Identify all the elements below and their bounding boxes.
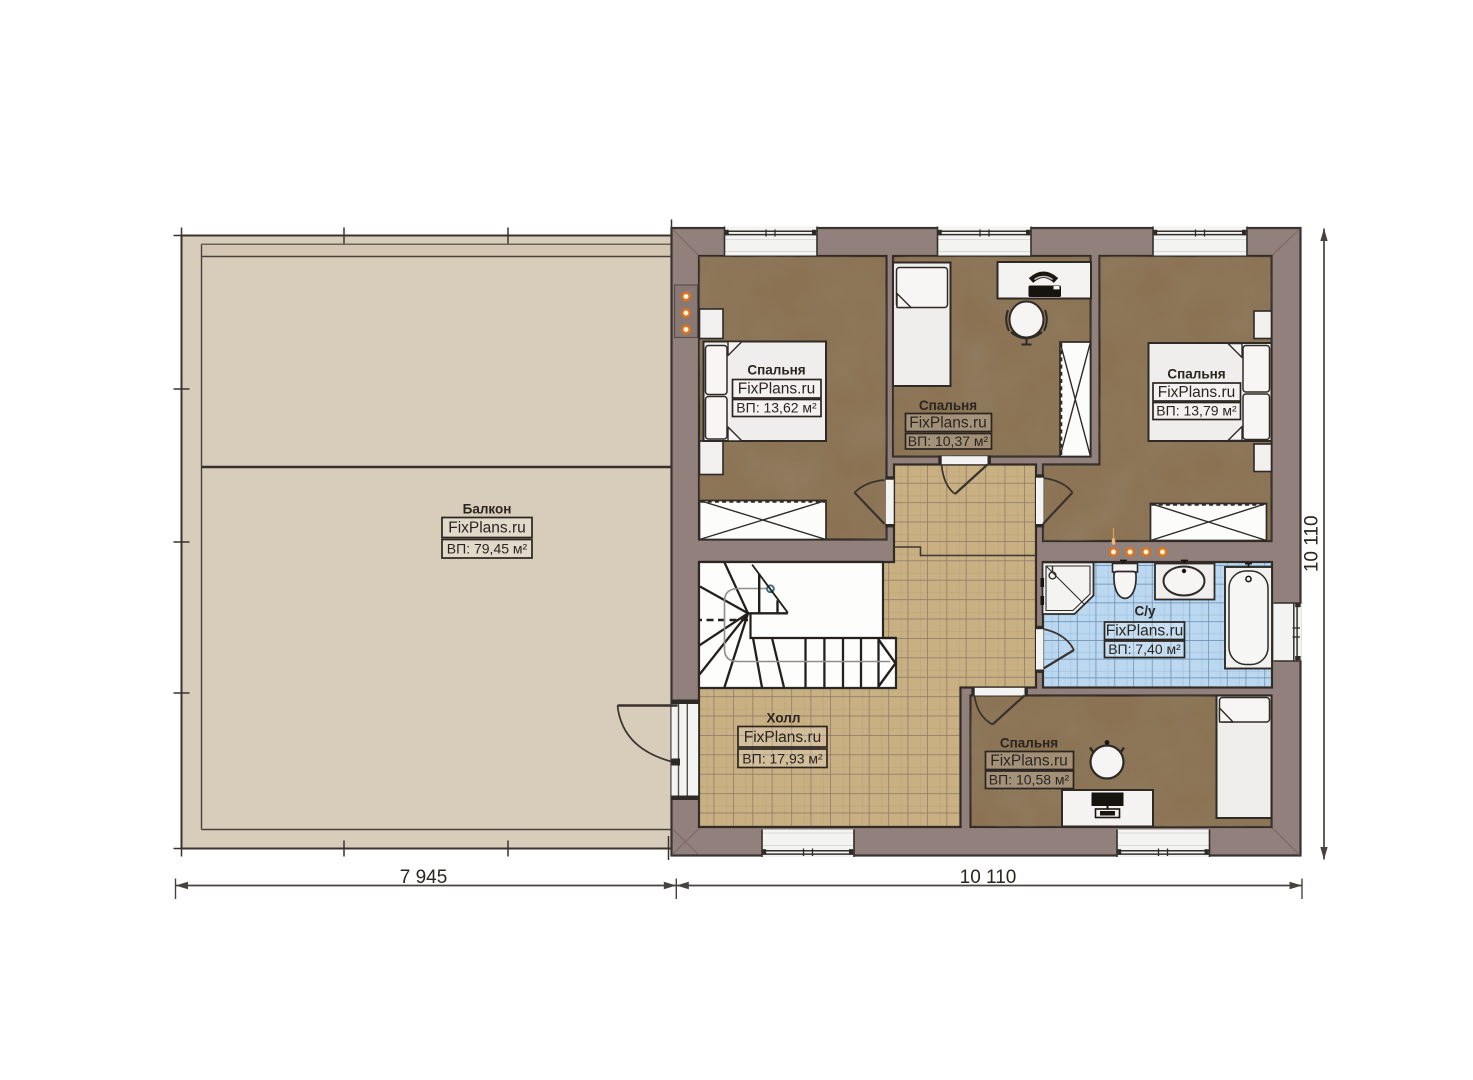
svg-text:FixPlans.ru: FixPlans.ru [744, 729, 822, 746]
svg-text:Холл: Холл [767, 711, 801, 726]
svg-text:FixPlans.ru: FixPlans.ru [909, 415, 987, 432]
svg-text:10 110: 10 110 [1302, 515, 1323, 572]
svg-text:ВП: 13,62 м²: ВП: 13,62 м² [736, 400, 817, 416]
svg-text:ВП: 7,40 м²: ВП: 7,40 м² [1108, 641, 1181, 657]
svg-text:ВП: 13,79 м²: ВП: 13,79 м² [1156, 403, 1237, 419]
svg-text:7 945: 7 945 [400, 867, 448, 888]
svg-text:Спальня: Спальня [747, 363, 805, 378]
svg-text:FixPlans.ru: FixPlans.ru [738, 381, 816, 398]
svg-text:FixPlans.ru: FixPlans.ru [990, 753, 1068, 770]
svg-text:Спальня: Спальня [919, 398, 977, 413]
svg-text:FixPlans.ru: FixPlans.ru [1158, 384, 1236, 401]
svg-text:FixPlans.ru: FixPlans.ru [1106, 623, 1184, 640]
svg-text:С/у: С/у [1134, 604, 1156, 619]
svg-text:ВП: 79,45 м²: ВП: 79,45 м² [447, 541, 528, 557]
svg-text:Спальня: Спальня [1000, 736, 1058, 751]
svg-text:Спальня: Спальня [1167, 367, 1225, 382]
svg-text:Балкон: Балкон [463, 502, 512, 517]
svg-text:ВП: 10,58 м²: ВП: 10,58 м² [989, 772, 1070, 788]
svg-text:10 110: 10 110 [960, 867, 1017, 888]
svg-text:FixPlans.ru: FixPlans.ru [448, 520, 526, 537]
svg-text:ВП: 10,37 м²: ВП: 10,37 м² [908, 433, 989, 449]
svg-text:ВП: 17,93 м²: ВП: 17,93 м² [742, 751, 823, 767]
